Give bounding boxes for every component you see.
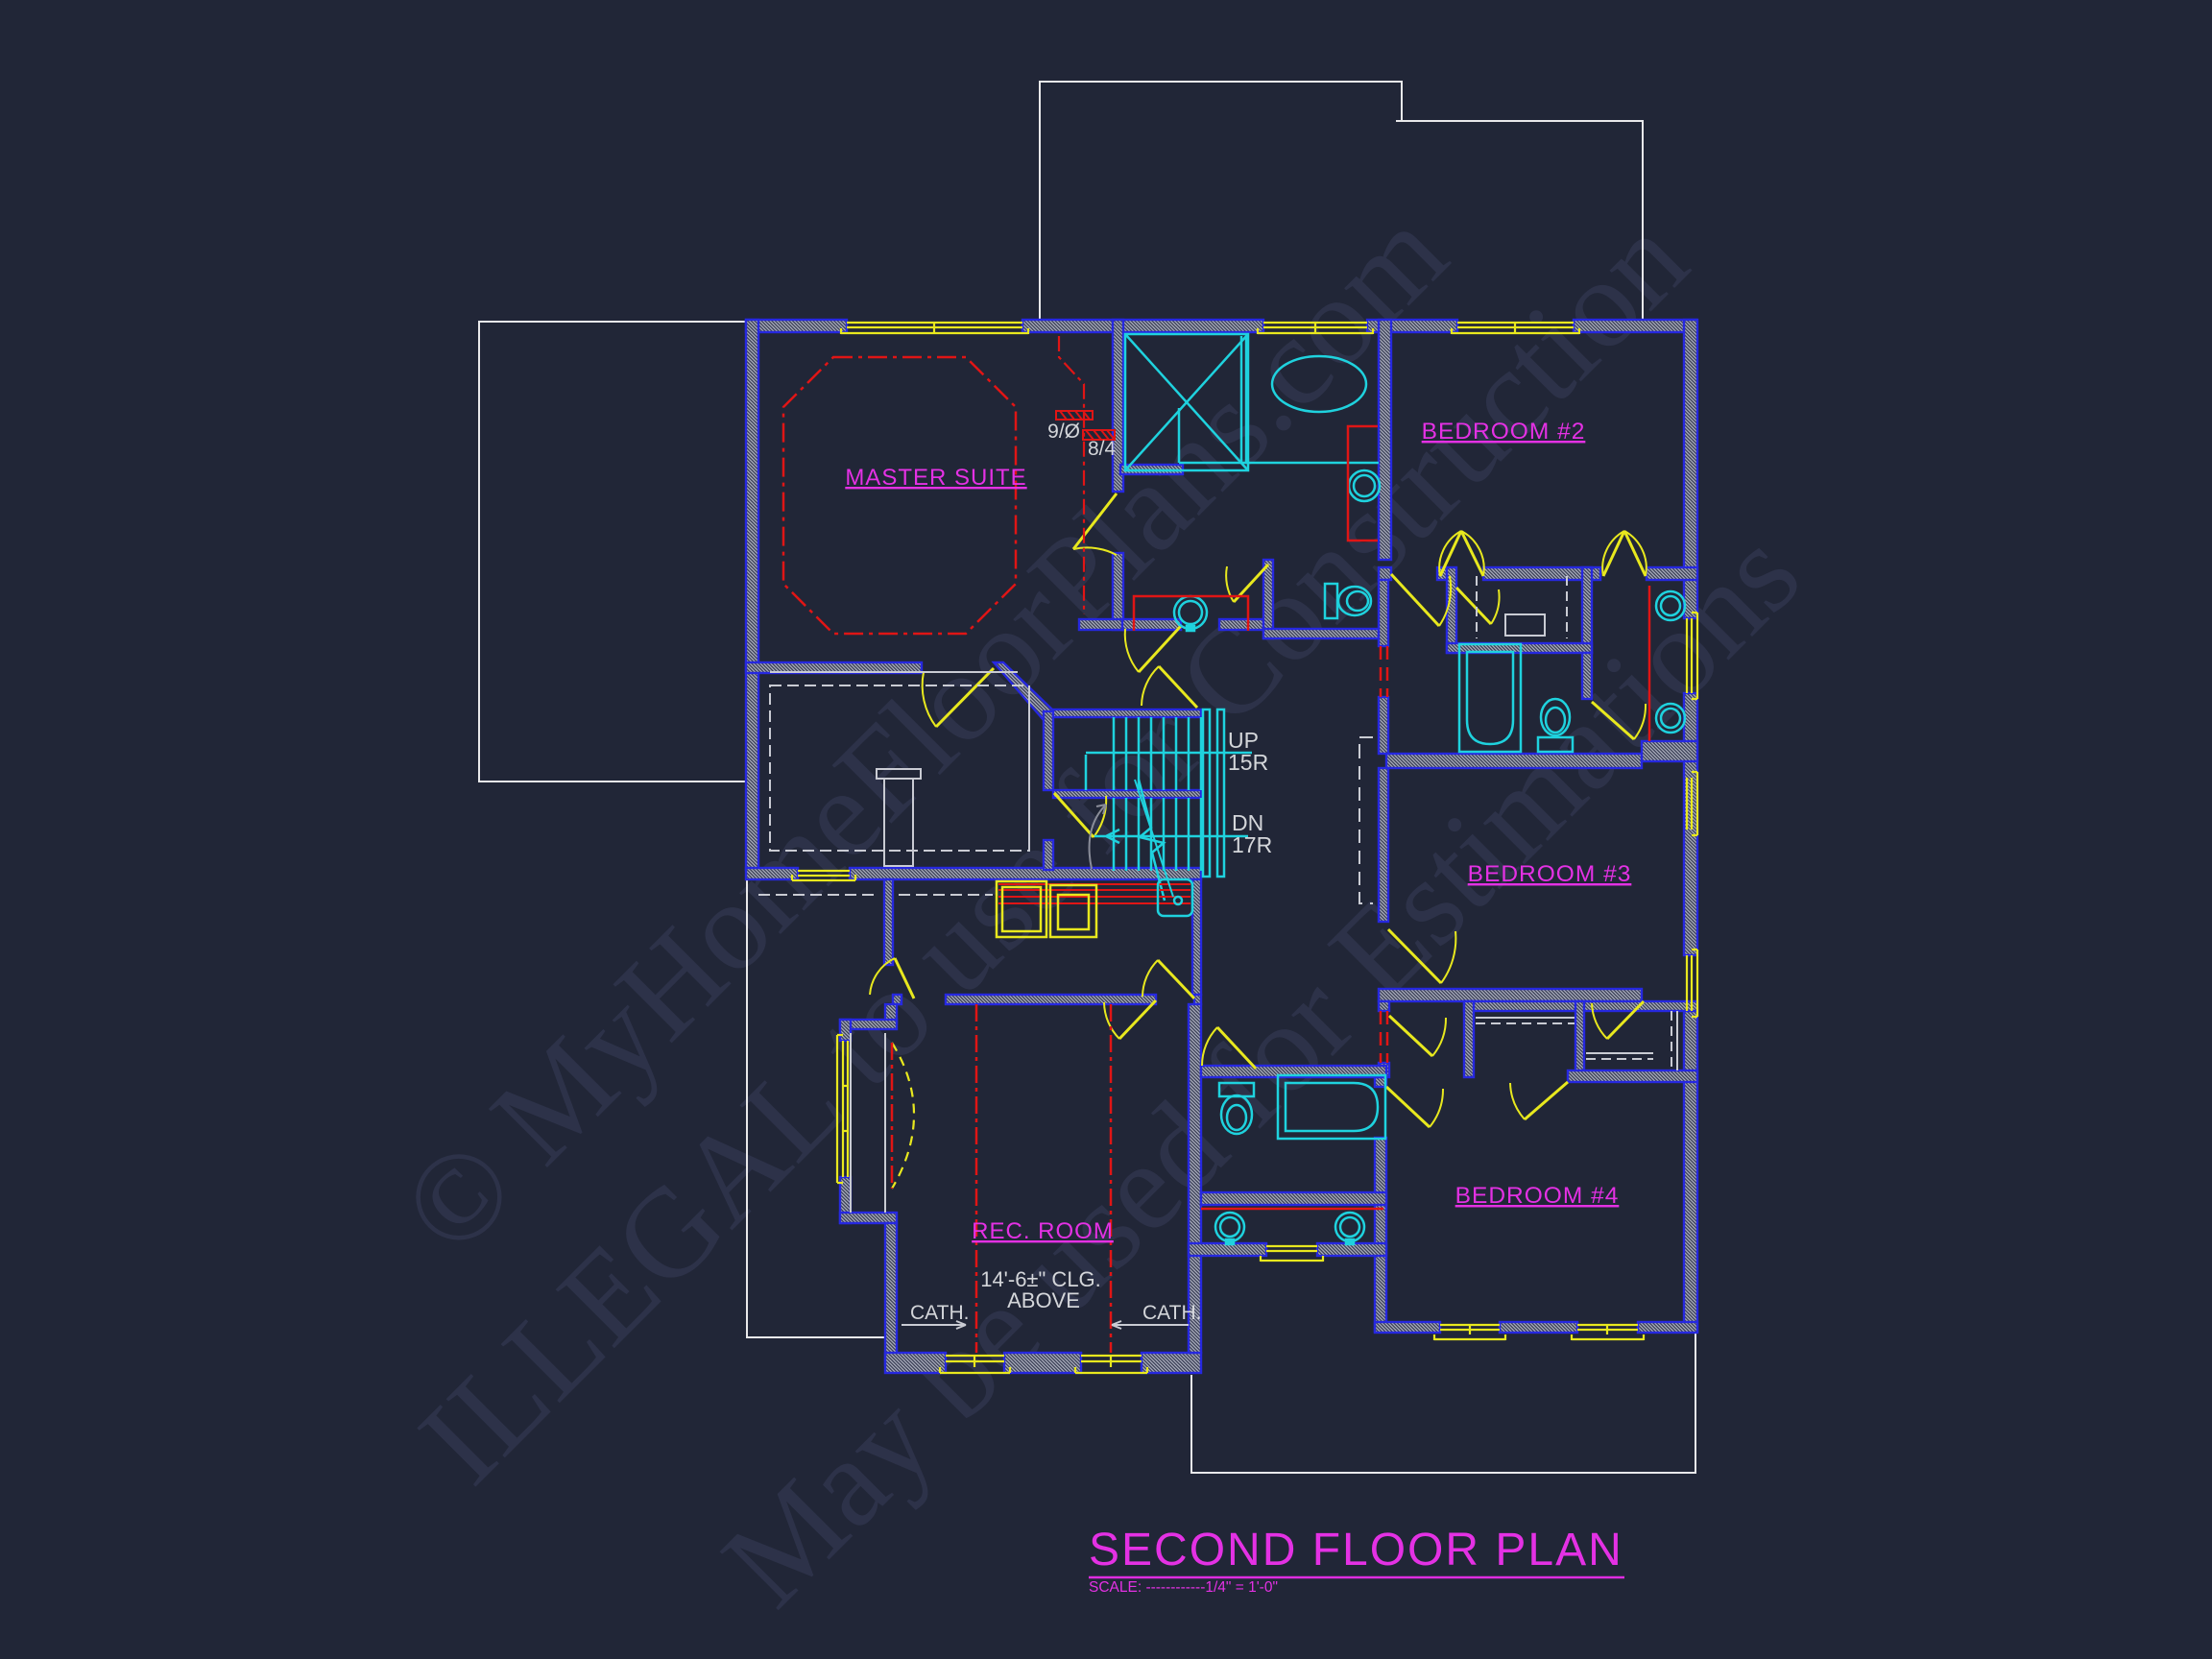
svg-text:CATH.: CATH.	[1142, 1302, 1201, 1324]
svg-text:REC. ROOM: REC. ROOM	[972, 1218, 1114, 1244]
svg-text:CATH.: CATH.	[910, 1302, 969, 1324]
svg-text:15R: 15R	[1228, 750, 1268, 775]
svg-text:MASTER SUITE: MASTER SUITE	[845, 465, 1026, 491]
svg-text:17R: 17R	[1232, 832, 1272, 857]
svg-text:BEDROOM #3: BEDROOM #3	[1468, 861, 1632, 887]
svg-text:SCALE: ------------1/4" = 1'-0: SCALE: ------------1/4" = 1'-0"	[1089, 1579, 1278, 1596]
svg-text:8/4: 8/4	[1088, 438, 1117, 460]
svg-text:SECOND FLOOR PLAN: SECOND FLOOR PLAN	[1089, 1525, 1623, 1575]
svg-text:ABOVE: ABOVE	[1007, 1288, 1080, 1312]
svg-text:BEDROOM #4: BEDROOM #4	[1455, 1183, 1620, 1209]
svg-text:9/Ø: 9/Ø	[1047, 421, 1080, 443]
svg-text:BEDROOM #2: BEDROOM #2	[1422, 419, 1586, 445]
